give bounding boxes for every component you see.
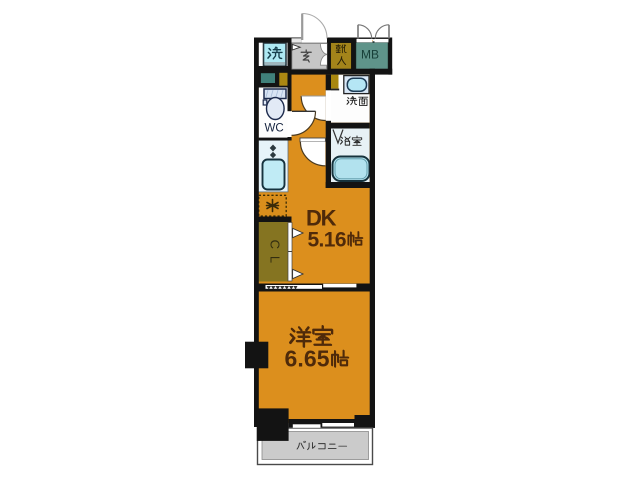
svg-text:MB: MB xyxy=(361,48,379,62)
svg-text:WC: WC xyxy=(265,123,284,135)
svg-text:6.65: 6.65 xyxy=(285,346,330,372)
svg-text:5.16: 5.16 xyxy=(308,229,347,252)
svg-text:DK: DK xyxy=(306,206,337,231)
svg-text:L: L xyxy=(268,256,283,263)
svg-text:C: C xyxy=(268,240,283,249)
